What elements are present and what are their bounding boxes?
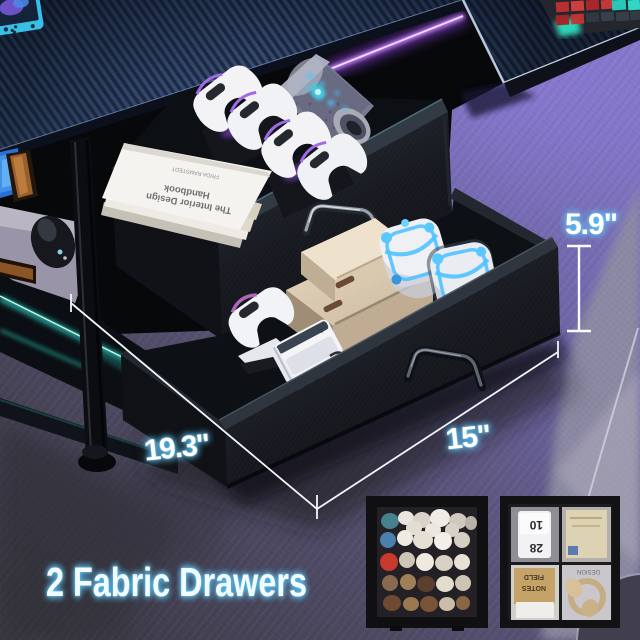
svg-text:28: 28 [529, 541, 543, 555]
svg-text:15": 15" [444, 419, 492, 456]
svg-text:FIELD: FIELD [524, 573, 544, 580]
svg-text:19.3": 19.3" [142, 428, 210, 468]
svg-text:10: 10 [529, 518, 543, 532]
svg-text:DESIGN: DESIGN [577, 568, 600, 574]
svg-text:2 Fabric Drawers: 2 Fabric Drawers [46, 559, 307, 604]
svg-text:NOTES: NOTES [522, 584, 546, 591]
svg-text:5.9": 5.9" [565, 208, 617, 241]
